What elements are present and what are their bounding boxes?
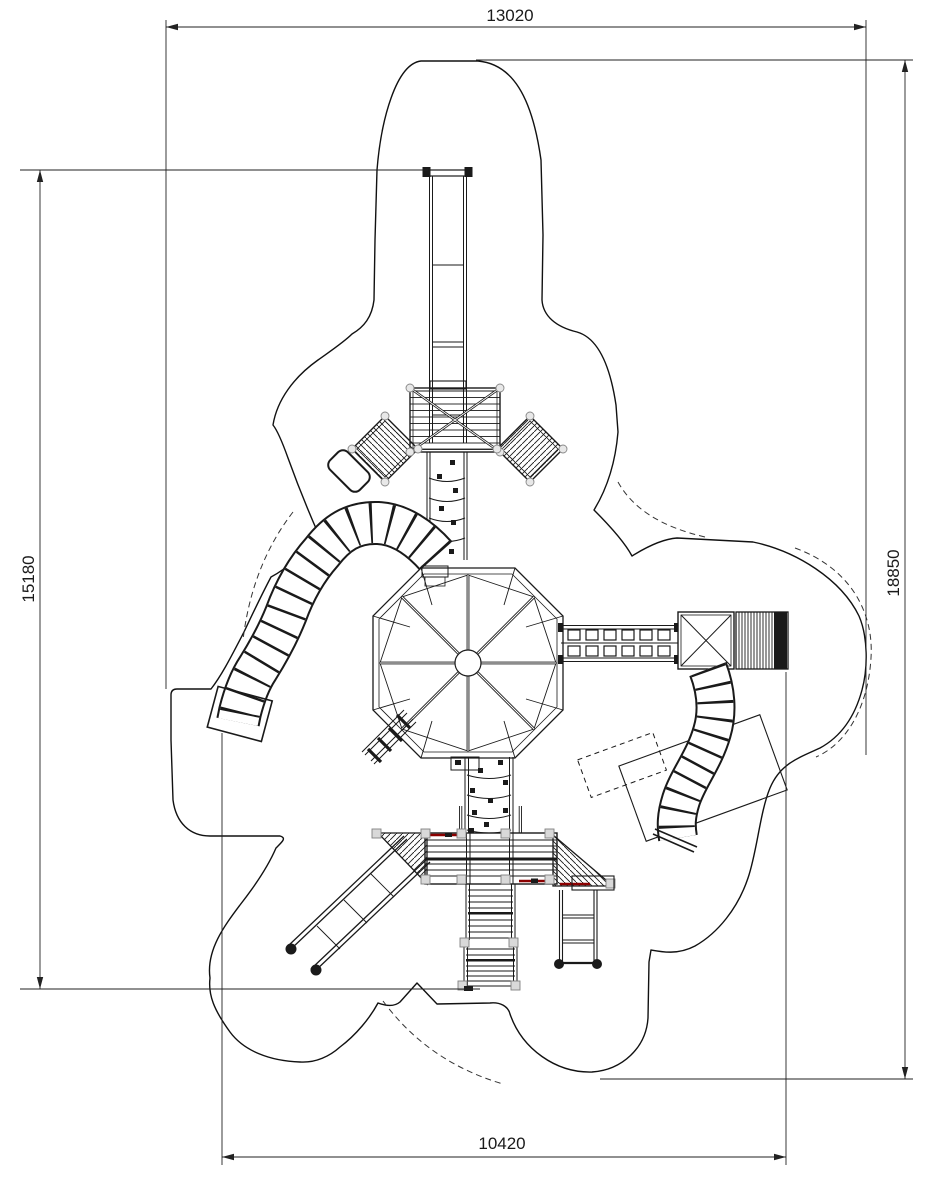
deck-roof-left: [378, 833, 427, 884]
dashed-arc-right: [795, 548, 871, 757]
technical-drawing-page: 13020 15180 18850 10420: [0, 0, 931, 1197]
safety-area-outline: [171, 61, 866, 1072]
dim-text-bottom-width: 10420: [478, 1134, 525, 1153]
tube-slide-small: [653, 669, 715, 852]
lower-deck: [372, 829, 615, 888]
dim-text-left-height: 15180: [19, 555, 38, 602]
dashed-arc-upper-right: [618, 482, 705, 537]
short-slide-right: [555, 876, 615, 969]
octagon-center-hub: [455, 650, 481, 676]
center-stairs: [458, 884, 520, 991]
safety-area-dashed-arcs: [243, 482, 871, 1084]
climbing-holds-lower: [469, 760, 508, 833]
site-plan-drawing: 13020 15180 18850 10420: [0, 0, 931, 1197]
dashed-arc-bottom: [383, 1001, 503, 1084]
right-tower-ladder: [736, 612, 788, 669]
upper-tower-roof: [325, 384, 567, 495]
clatter-bridge: [558, 623, 679, 664]
deck-roof-right: [553, 835, 613, 886]
dim-text-right-height: 18850: [884, 549, 903, 596]
right-roof-ramp: [497, 416, 563, 482]
right-square-tower: [678, 612, 734, 669]
dim-text-top-width: 13020: [486, 6, 533, 25]
